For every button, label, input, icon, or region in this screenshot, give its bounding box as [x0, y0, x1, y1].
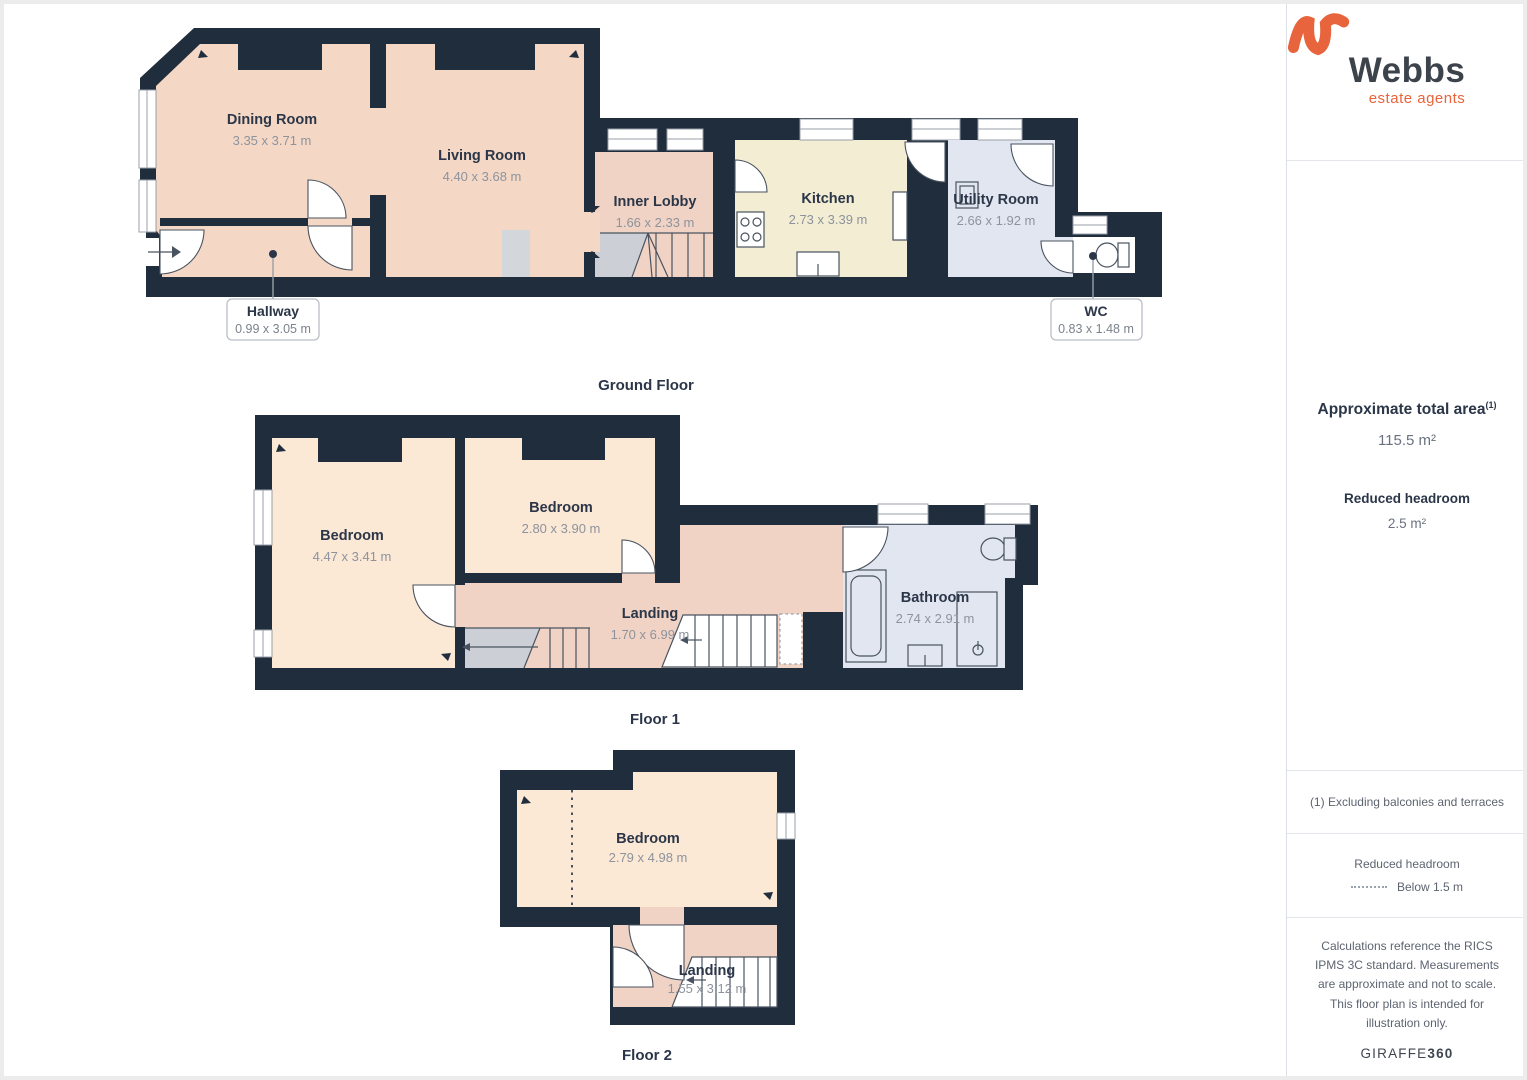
toilet-icon-f1 — [981, 538, 1016, 560]
utility-window — [978, 119, 1022, 140]
bedroom2-notch — [522, 438, 605, 460]
footnote-marker: (1) — [1485, 400, 1496, 410]
label-landing-f1: Landing — [622, 606, 678, 622]
label-hallway: Hallway — [247, 303, 299, 319]
label-living-room: Living Room — [438, 148, 526, 164]
disclaimer: Calculations reference the RICS IPMS 3C … — [1287, 917, 1527, 1080]
webbs-logo-icon — [1287, 0, 1351, 64]
kitchen-counter — [893, 192, 907, 240]
label-kitchen: Kitchen — [801, 191, 854, 207]
hob-icon — [737, 212, 764, 247]
headroom-legend: Reduced headroom Below 1.5 m — [1287, 833, 1527, 917]
floor-2-plan: Bedroom 2.79 x 4.98 m Landing 1.55 x 3.1… — [500, 750, 795, 1064]
dims-bedroom-1: 4.47 x 3.41 m — [313, 549, 392, 564]
dims-kitchen: 2.73 x 3.39 m — [789, 212, 868, 227]
label-utility-room: Utility Room — [953, 192, 1038, 208]
bay-windows — [139, 90, 156, 232]
reduced-headroom-value: 2.5 m² — [1388, 516, 1426, 531]
disclaimer-text: Calculations reference the RICS IPMS 3C … — [1308, 937, 1506, 1033]
chimney-hearth — [502, 230, 530, 277]
area-footnote: (1) Excluding balconies and terraces — [1287, 770, 1527, 833]
basin-icon — [908, 645, 942, 666]
label-bathroom: Bathroom — [901, 590, 969, 606]
dotted-line-icon — [1351, 886, 1387, 888]
total-area-heading: Approximate total area(1) — [1318, 400, 1497, 419]
brand-name: Webbs — [1349, 53, 1466, 88]
dims-living-room: 4.40 x 3.68 m — [443, 169, 522, 184]
legend-item-label: Below 1.5 m — [1397, 880, 1463, 894]
bathtub-icon — [846, 570, 886, 662]
giraffe360-credit: GIRAFFE360 — [1360, 1046, 1453, 1061]
caption-floor-1: Floor 1 — [630, 711, 680, 728]
brand-tagline: estate agents — [1369, 90, 1466, 107]
brand-header: Webbs estate agents — [1287, 0, 1527, 160]
label-bedroom-1: Bedroom — [320, 528, 384, 544]
dims-bathroom: 2.74 x 2.91 m — [896, 611, 975, 626]
floorplan-canvas: Dining Room 3.35 x 3.71 m Living Room 4.… — [0, 0, 1286, 1080]
toilet-icon — [1096, 243, 1129, 267]
floorplan-page: Dining Room 3.35 x 3.71 m Living Room 4.… — [0, 0, 1527, 1080]
sink-icon — [797, 252, 839, 276]
wc-window — [1073, 216, 1107, 234]
label-bedroom-f2: Bedroom — [616, 831, 680, 847]
dims-landing-f2: 1.55 x 3.12 m — [668, 981, 747, 996]
stairwell-void — [780, 614, 802, 664]
label-dining-room: Dining Room — [227, 112, 317, 128]
dims-hallway: 0.99 x 3.05 m — [235, 322, 311, 336]
label-landing-f2: Landing — [679, 963, 735, 979]
lobby-windows — [608, 129, 703, 150]
floor-1-plan: Bedroom 4.47 x 3.41 m Bedroom 2.80 x 3.9… — [254, 415, 1038, 728]
area-summary: Approximate total area(1) 115.5 m² Reduc… — [1287, 160, 1527, 770]
floor2-window — [777, 813, 795, 839]
label-bedroom-2: Bedroom — [529, 500, 593, 516]
label-wc: WC — [1084, 303, 1107, 319]
reduced-headroom-heading: Reduced headroom — [1344, 491, 1470, 506]
dims-bedroom-f2: 2.79 x 4.98 m — [609, 850, 688, 865]
bedroom1-notch — [318, 438, 402, 462]
total-area-value: 115.5 m² — [1378, 432, 1436, 449]
legend-title: Reduced headroom — [1354, 857, 1459, 871]
dims-utility-room: 2.66 x 1.92 m — [957, 213, 1036, 228]
dims-wc: 0.83 x 1.48 m — [1058, 322, 1134, 336]
caption-floor-2: Floor 2 — [622, 1047, 672, 1064]
dims-dining-room: 3.35 x 3.71 m — [233, 133, 312, 148]
opening-living-lobby — [584, 212, 600, 252]
dims-bedroom-2: 2.80 x 3.90 m — [522, 521, 601, 536]
dims-landing-f1: 1.70 x 6.99 m — [611, 627, 690, 642]
dims-inner-lobby: 1.66 x 2.33 m — [616, 215, 695, 230]
label-inner-lobby: Inner Lobby — [614, 194, 697, 210]
info-sidebar: Webbs estate agents Approximate total ar… — [1286, 0, 1527, 1080]
ground-floor-plan: Dining Room 3.35 x 3.71 m Living Room 4.… — [139, 28, 1162, 394]
footnote-text: (1) Excluding balconies and terraces — [1310, 795, 1504, 809]
caption-ground-floor: Ground Floor — [598, 377, 694, 394]
